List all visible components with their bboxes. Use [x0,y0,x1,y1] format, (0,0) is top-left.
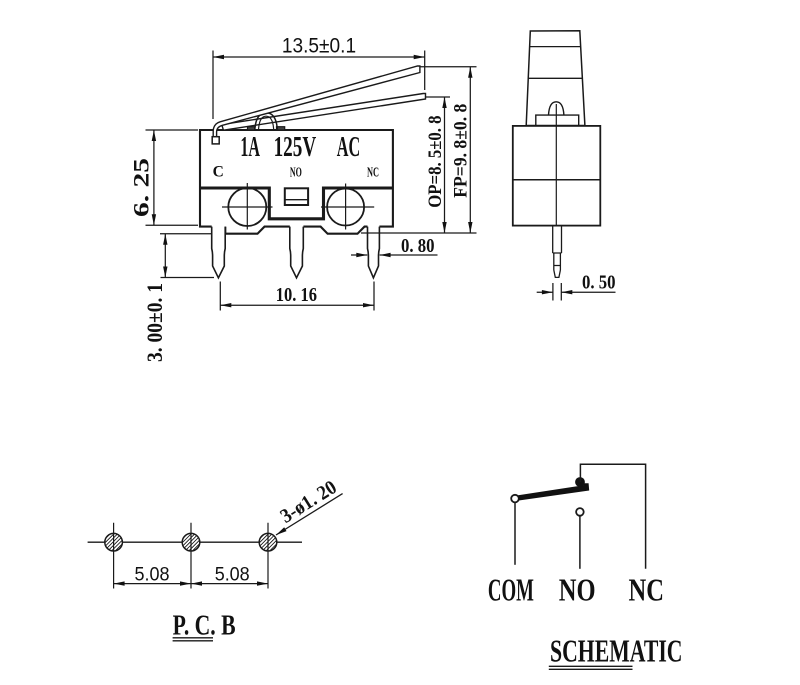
svg-text:1A: 1A [240,132,260,163]
svg-text:13.5±0.1: 13.5±0.1 [282,34,356,58]
svg-text:3. 00±0. 1: 3. 00±0. 1 [142,283,167,362]
svg-text:NO: NO [559,572,596,608]
svg-text:5.08: 5.08 [135,563,170,585]
svg-text:5.08: 5.08 [215,563,250,585]
svg-text:P. C. B: P. C. B [173,609,236,641]
svg-text:6. 25: 6. 25 [129,158,154,217]
svg-text:C: C [213,164,224,181]
svg-text:AC: AC [337,132,360,163]
svg-text:NO: NO [290,166,302,181]
svg-text:125V: 125V [274,132,317,163]
svg-text:NC: NC [629,572,665,608]
svg-text:COM: COM [488,572,534,608]
svg-text:10. 16: 10. 16 [276,284,317,306]
svg-text:0. 50: 0. 50 [582,271,616,293]
svg-text:SCHEMATIC: SCHEMATIC [550,633,683,669]
svg-text:0. 80: 0. 80 [401,235,435,257]
svg-text:FP=9. 8±0. 8: FP=9. 8±0. 8 [450,104,471,198]
svg-text:NC: NC [367,166,379,181]
svg-text:OP=8. 5±0. 8: OP=8. 5±0. 8 [425,115,446,207]
